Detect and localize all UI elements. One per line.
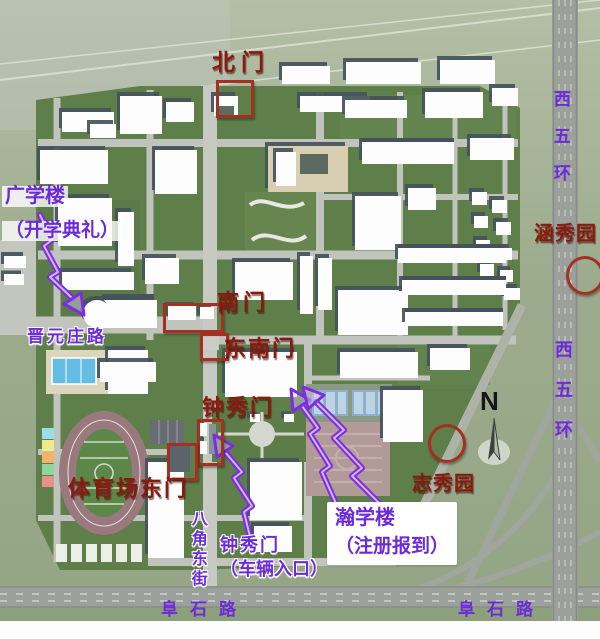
zhixiu-garden-marker xyxy=(428,424,466,463)
zhongxiu-vehicle-gate-note: （车辆入口） xyxy=(220,560,328,579)
practice-field xyxy=(306,422,390,496)
fushi-road-label-right: 阜石路 xyxy=(458,601,545,619)
hanxiu-garden-label: 涵秀园 xyxy=(534,224,597,245)
zhongxiu-gate-marker xyxy=(197,419,224,466)
swimming-pool xyxy=(46,350,108,394)
guangxue-building-label: 广学楼 xyxy=(2,186,68,207)
map-graphic xyxy=(0,0,600,639)
hanxiu-garden-marker xyxy=(566,256,600,295)
hanxue-label-box: 瀚学楼 （注册报到） xyxy=(327,502,457,565)
south-gate-label: 南门 xyxy=(217,291,269,314)
zhongxiu-gate-label: 钟秀门 xyxy=(202,396,274,419)
zhixiu-garden-label: 志秀园 xyxy=(412,474,475,495)
central-park xyxy=(245,192,315,256)
hanxue-building-note: （注册报到） xyxy=(335,537,449,557)
west-fifth-ring-label-upper: 西五环 xyxy=(551,90,569,201)
solar-canopy xyxy=(150,420,184,444)
stadium-east-gate-label: 体育场东门 xyxy=(68,477,188,500)
bajiao-east-street-label: 八角东街 xyxy=(188,510,205,590)
west-outside-buildings xyxy=(0,240,36,335)
north-gate-marker xyxy=(216,80,254,118)
compass-n-label: N xyxy=(480,388,499,415)
north-gate-label: 北门 xyxy=(212,50,270,74)
zhongxiu-vehicle-gate-label: 钟秀门 xyxy=(220,536,280,555)
bottom-margin xyxy=(0,621,600,639)
south-gate-marker xyxy=(163,303,224,333)
campus-map: 北门 南门 东南门 钟秀门 体育场东门 涵秀园 志秀园 西五环 西五环 晋元庄路… xyxy=(0,0,600,639)
guangxue-building-note: （开学典礼） xyxy=(2,221,122,241)
west-fifth-ring-label-lower: 西五环 xyxy=(553,340,572,460)
southeast-gate-label: 东南门 xyxy=(224,337,296,360)
hanxue-building-label: 瀚学楼 xyxy=(335,508,449,529)
fushi-road-label-left: 阜石路 xyxy=(161,601,248,619)
jinyuanzhuang-road-label: 晋元庄路 xyxy=(27,328,107,346)
